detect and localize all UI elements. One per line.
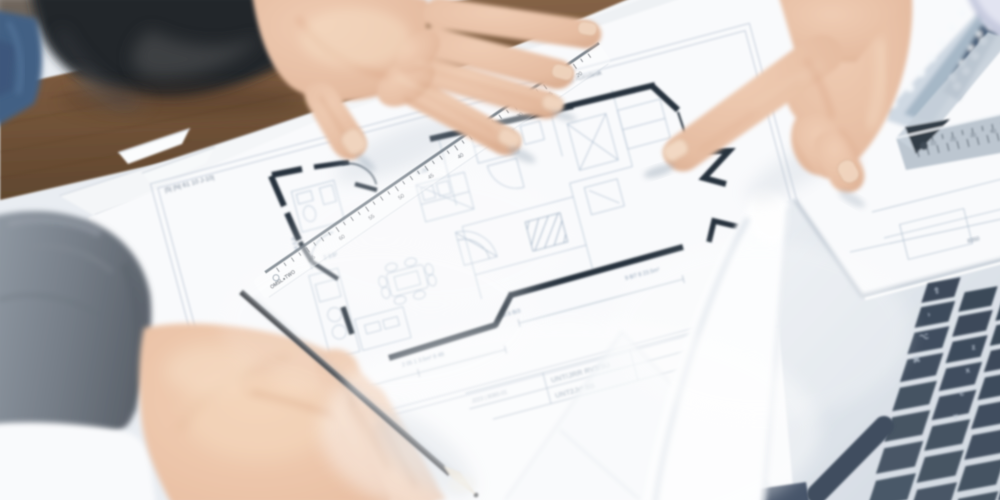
svg-text:30: 30 <box>970 133 976 139</box>
svg-text:40: 40 <box>990 129 996 135</box>
svg-text:10: 10 <box>930 141 936 147</box>
svg-text:⌥: ⌥ <box>919 331 930 342</box>
svg-text:20: 20 <box>950 137 956 143</box>
